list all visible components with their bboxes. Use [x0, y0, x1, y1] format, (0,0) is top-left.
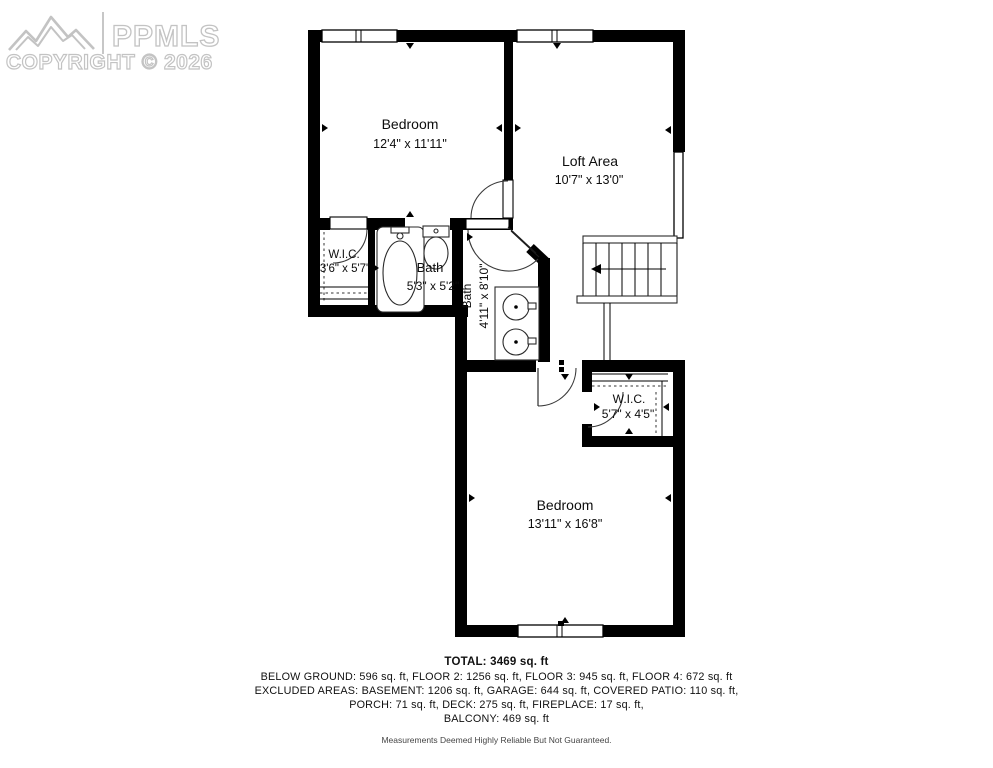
area-summary: TOTAL: 3469 sq. ft BELOW GROUND: 596 sq.… [0, 655, 993, 745]
double-vanity [495, 287, 539, 360]
loft-dims: 10'7" x 13'0" [555, 173, 624, 187]
bedroom1-window [322, 30, 397, 42]
bath2-door [466, 219, 539, 271]
bedroom2-door [538, 360, 576, 406]
bedroom2-dims: 13'11" x 16'8" [528, 517, 603, 531]
stair-railing [604, 303, 610, 360]
watermark: PPMLS COPYRIGHT © 2026 [6, 4, 266, 75]
floor-plan: Bedroom 12'4" x 11'11" Loft Area 10'7" x… [0, 0, 993, 768]
area-line-2: EXCLUDED AREAS: BASEMENT: 1206 sq. ft, G… [0, 684, 993, 698]
bedroom2-name: Bedroom [537, 497, 594, 513]
wic2-dims: 5'7" x 4'5" [602, 407, 654, 421]
wic1-name: W.I.C. [328, 249, 359, 261]
area-line-3: PORCH: 71 sq. ft, DECK: 275 sq. ft, FIRE… [0, 698, 993, 712]
watermark-divider [102, 12, 104, 54]
watermark-logo-text: PPMLS [112, 20, 220, 54]
loft-name: Loft Area [562, 153, 618, 169]
dimension-ticks [310, 43, 671, 623]
staircase [577, 236, 677, 360]
bedroom2-window [518, 621, 603, 637]
bath1-dims: 5'3" x 5'2" [407, 279, 459, 293]
bedroom1-name: Bedroom [382, 116, 439, 132]
loft-side-window [674, 152, 683, 238]
disclaimer: Measurements Deemed Highly Reliable But … [0, 735, 993, 745]
wic1-dims: 3'6" x 5'7" [320, 263, 370, 275]
watermark-copyright: COPYRIGHT © 2026 [6, 51, 266, 75]
floor-plan-svg: Bedroom 12'4" x 11'11" Loft Area 10'7" x… [0, 0, 993, 768]
area-line-4: BALCONY: 469 sq. ft [0, 712, 993, 726]
total-area: TOTAL: 3469 sq. ft [0, 655, 993, 670]
stairs-direction-arrow [591, 264, 666, 274]
loft-window [517, 30, 593, 42]
bath1-name: Bath [417, 260, 444, 275]
area-line-1: BELOW GROUND: 596 sq. ft, FLOOR 2: 1256 … [0, 670, 993, 684]
ppmls-mountain-icon [6, 4, 98, 54]
bath2-dims: 4'11" x 8'10" [477, 264, 491, 329]
wic2-name: W.I.C. [613, 392, 646, 406]
bath2-name: Bath [460, 284, 474, 309]
bedroom1-dims: 12'4" x 11'11" [373, 137, 447, 151]
bedroom1-door [471, 180, 513, 218]
